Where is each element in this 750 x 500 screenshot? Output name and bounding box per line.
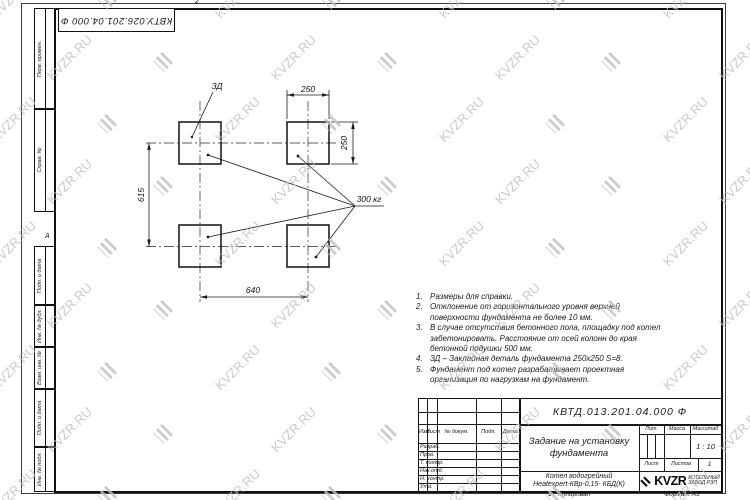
tb-lit-label: Лит. — [639, 426, 664, 432]
note-item: 2. Отклонение от горизонтального уровня … — [416, 302, 668, 323]
dim-left-615: 615 — [136, 188, 146, 202]
dimension-lines — [149, 90, 358, 297]
tb-sig-nkontr: Н. контр. — [420, 476, 445, 482]
tb-product-name: Котел водогрейный Heatexpert-КВр-0,15- К… — [519, 471, 639, 491]
dim-bottom-640: 640 — [246, 285, 260, 295]
zone-mark-bottom: 1 — [548, 491, 552, 498]
tb-mass-label: Масса — [664, 426, 690, 432]
leader-dots — [191, 136, 318, 259]
tb-title-line2: фундамента — [529, 448, 630, 460]
note-number: 2. — [416, 302, 430, 323]
tb-company-logo: KVZR КОТЕЛЬНЫЙ ЗАВОД РЭП — [639, 471, 721, 491]
tb-sheet-label: Лист — [639, 461, 664, 467]
tb-col-data: Дата — [501, 429, 519, 435]
note-text: Фундамент под котел разрабатывает проект… — [430, 365, 668, 386]
tb-line — [639, 458, 721, 459]
kvzr-logo-icon — [640, 475, 652, 487]
notes-list: 1. Размеры для справки. 2. Отклонение от… — [416, 292, 668, 386]
tb-col-podp: Подп. — [476, 429, 501, 435]
note-item: 3. В случае отсутствия бетонного пола, п… — [416, 323, 668, 354]
tb-line — [501, 399, 502, 491]
note-number: 5. — [416, 365, 430, 386]
embed-detail-label: ЗД — [212, 81, 223, 91]
kvzr-logo-text: KVZR — [654, 474, 686, 488]
tb-sig-prov: Пров. — [420, 452, 435, 458]
tb-scale-value: 1 : 10 — [690, 434, 721, 458]
tb-product-line2: Heatexpert-КВр-0,15- КБД(К) — [533, 481, 625, 490]
foundation-pads — [179, 122, 329, 267]
tb-sheets-label: Листов — [664, 461, 698, 467]
title-block: Изм Лист № докум. Подп. Дата Разраб. Про… — [418, 398, 722, 492]
tb-sheets-value: 1 — [698, 461, 721, 468]
tb-designation: КВТД.013.201.04.000 Ф — [519, 399, 721, 424]
centerlines — [146, 101, 336, 302]
tb-line — [419, 412, 519, 413]
dim-right-250: 250 — [339, 136, 349, 151]
load-label: 300 кг — [357, 194, 382, 204]
tb-sig-utv: Утв. — [420, 484, 433, 490]
copied-label: Копировал — [558, 491, 590, 498]
tb-col-doc: № докум. — [437, 429, 476, 435]
tb-product-line1: Котел водогрейный — [533, 473, 625, 482]
tb-document-title: Задание на установку фундамента — [519, 424, 639, 471]
note-number: 4. — [416, 354, 430, 364]
tb-line — [419, 424, 519, 425]
note-number: 1. — [416, 292, 430, 302]
note-text: ЗД – Закладная деталь фундамента 250х250… — [430, 354, 668, 364]
drawing-sheet: 2 А КВТУ.026.201.04.000 Ф Перв. примен. … — [0, 0, 750, 500]
tb-line — [419, 483, 519, 484]
note-number: 3. — [416, 323, 430, 354]
dim-top-250: 250 — [300, 84, 315, 94]
tb-sig-tkontr: Т. контр. — [420, 460, 444, 466]
format-label: Формат А3 — [664, 491, 700, 498]
note-item: 5. Фундамент под котел разрабатывает про… — [416, 365, 668, 386]
kvzr-logo-sub2: ЗАВОД РЭП — [688, 481, 719, 487]
note-text: Размеры для справки. — [430, 292, 668, 302]
tb-line — [655, 434, 656, 458]
tb-sig-razrab: Разраб. — [420, 444, 440, 450]
note-text: В случае отсутствия бетонного пола, площ… — [430, 323, 668, 354]
tb-scale-label: Масштаб — [690, 426, 721, 432]
note-text: Отклонение от горизонтального уровня вер… — [430, 302, 668, 323]
tb-title-line1: Задание на установку — [529, 436, 630, 448]
tb-line — [476, 399, 477, 491]
tb-line — [647, 434, 648, 458]
kvzr-logo-subtitle: КОТЕЛЬНЫЙ ЗАВОД РЭП — [688, 476, 719, 487]
tb-sig-nachotd: Нач.отд. — [420, 468, 443, 474]
dimension-texts: 250 250 615 640 ЗД 300 кг — [136, 81, 381, 295]
note-item: 1. Размеры для справки. — [416, 292, 668, 302]
note-item: 4. ЗД – Закладная деталь фундамента 250х… — [416, 354, 668, 364]
